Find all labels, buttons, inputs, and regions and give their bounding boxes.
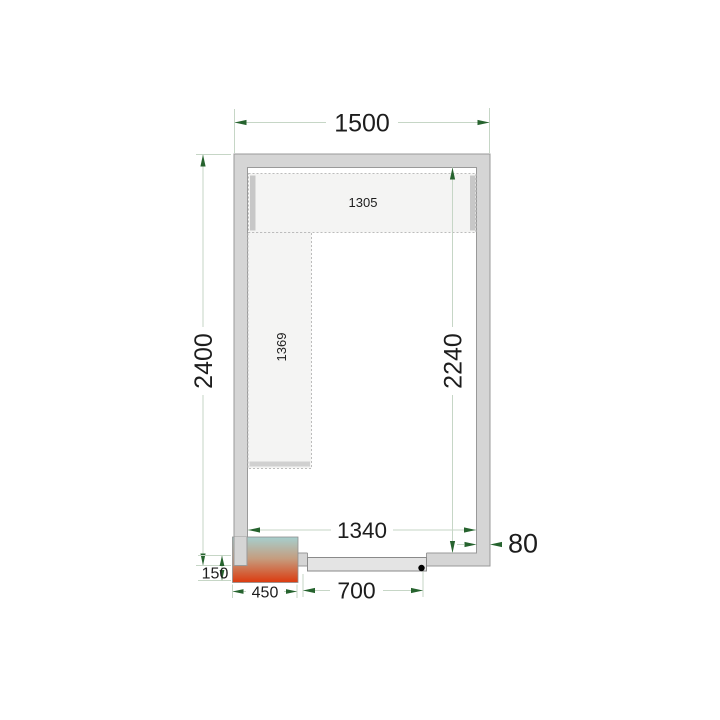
door-leaf (308, 558, 427, 572)
shelf-top: 1305 (249, 174, 477, 233)
dim-unit-width-label: 450 (252, 584, 279, 601)
dim-wall-thickness-arrow-outer (490, 542, 502, 547)
dim-inner-width-label: 1340 (337, 518, 387, 543)
dim-outer-height-arrow-top (200, 155, 205, 167)
shelf-top-length-label: 1305 (349, 195, 378, 210)
dim-inner-height-label: 2240 (440, 333, 468, 389)
dim-outer-width-arrow-left (235, 120, 247, 125)
shelf-left: 1369 (248, 233, 312, 469)
shelf-top-right-leg (470, 176, 476, 231)
dim-unit-width-arrow-left (233, 589, 244, 594)
cooling-unit (233, 537, 299, 583)
dim-outer-width-arrow-right (478, 120, 490, 125)
dim-door-width-arrow-right (411, 588, 423, 593)
shelf-left-end-leg (250, 462, 311, 467)
dim-wall-thickness-arrow-inner (465, 542, 477, 547)
dim-unit-protrusion-label: 150 (202, 566, 229, 583)
dim-unit-width: 450 (233, 584, 298, 601)
shelf-left-length-label: 1369 (274, 333, 289, 362)
dim-door-width: 700 (303, 572, 423, 604)
dim-outer-width-label: 1500 (334, 110, 390, 138)
door-hinge-dot (418, 565, 424, 571)
shelf-top-left-leg (250, 176, 256, 231)
floor-plan-drawing: 1305 1369 1500 2400 2240 (0, 0, 720, 720)
dim-inner-width-arrow-left (248, 527, 260, 532)
dim-outer-height-label: 2400 (190, 333, 218, 389)
door (308, 558, 427, 572)
wall-over-unit (234, 537, 247, 566)
dim-inner-height-arrow-bottom (450, 541, 455, 553)
dim-outer-height: 2400 (190, 155, 231, 566)
dim-wall-thickness-label: 80 (508, 529, 538, 559)
floor-plan-canvas: 1305 1369 1500 2400 2240 (0, 0, 720, 720)
dim-unit-width-arrow-right (286, 589, 297, 594)
dim-door-width-label: 700 (337, 578, 375, 604)
dim-door-width-arrow-left (303, 588, 315, 593)
dim-unit-protrusion-arrow-top (220, 556, 225, 567)
dim-outer-width: 1500 (235, 108, 490, 153)
dim-inner-width-arrow-right (464, 527, 476, 532)
